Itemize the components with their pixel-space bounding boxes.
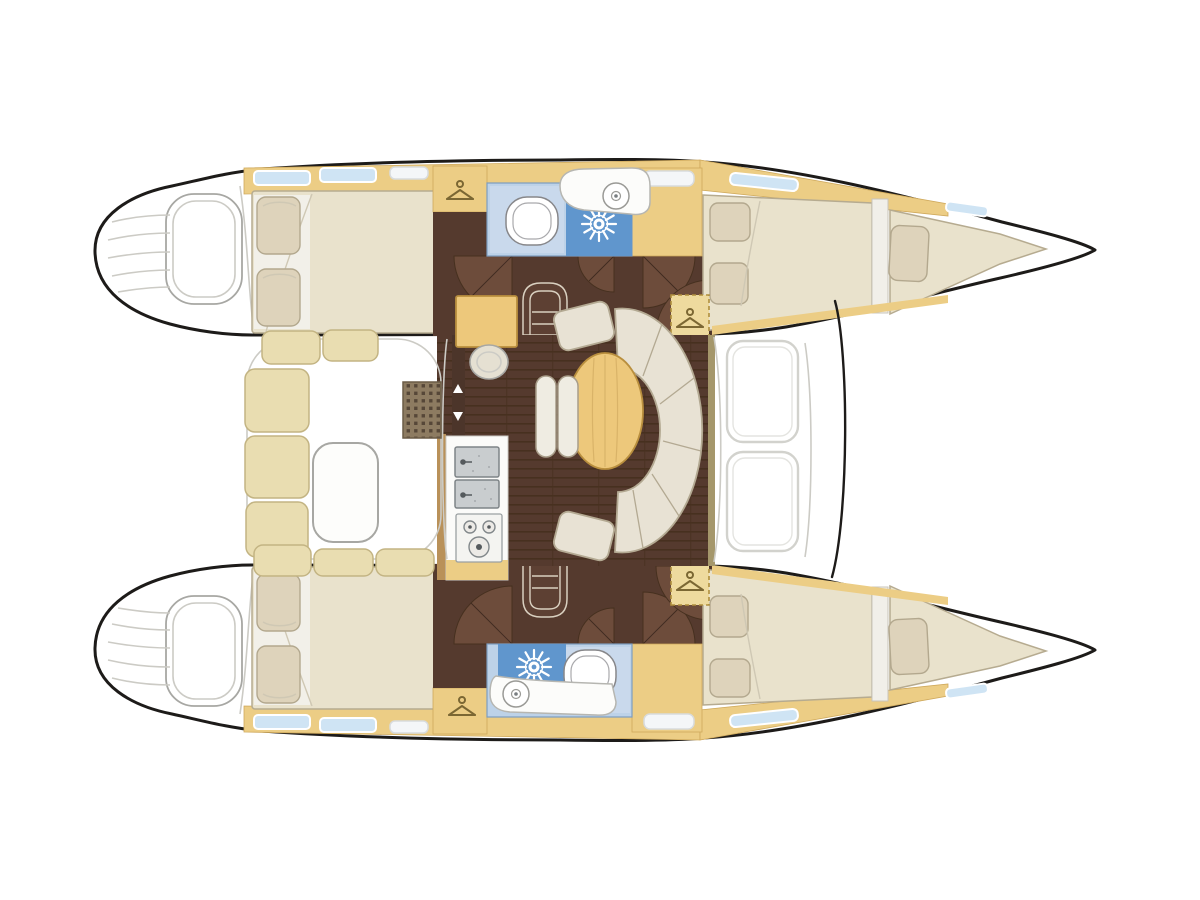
chart-table (456, 296, 517, 347)
double-sink-icon (455, 447, 499, 508)
cockpit-table (313, 443, 378, 542)
catamaran-floorplan (0, 0, 1200, 900)
deck-grate (403, 382, 441, 438)
stove-icon (456, 514, 502, 562)
bathroom-bottom (487, 644, 632, 717)
salon-bench (558, 376, 578, 457)
nav-stool (470, 345, 508, 379)
salon-front-windows (714, 337, 811, 562)
floorplan-svg (0, 0, 1200, 900)
cockpit (245, 330, 447, 576)
salon (437, 296, 715, 580)
foredeck-beam-line (832, 301, 845, 577)
salon-forward-wall (708, 335, 715, 566)
salon-bench (536, 376, 556, 457)
